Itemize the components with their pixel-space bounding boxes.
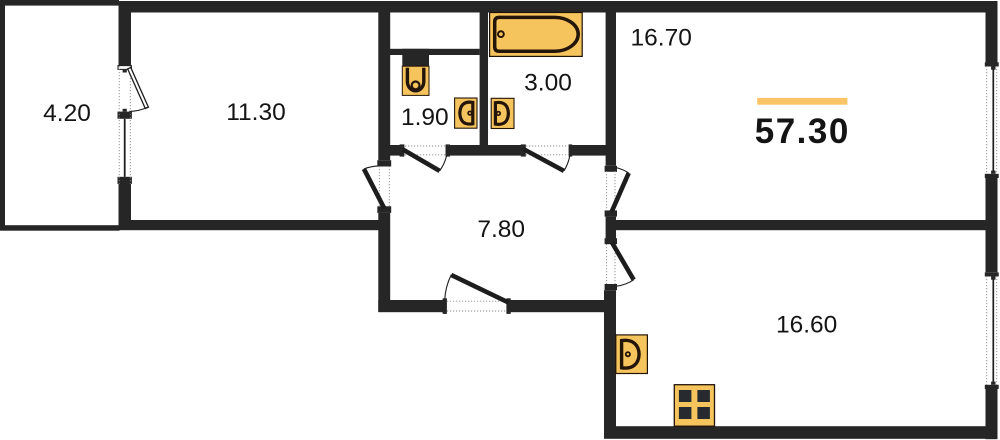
- svg-text:1.90: 1.90: [401, 104, 449, 131]
- svg-text:4.20: 4.20: [43, 100, 91, 127]
- svg-text:16.70: 16.70: [631, 24, 692, 51]
- svg-text:57.30: 57.30: [755, 112, 850, 151]
- svg-text:7.80: 7.80: [477, 216, 525, 243]
- svg-text:3.00: 3.00: [524, 70, 572, 97]
- svg-text:11.30: 11.30: [226, 99, 286, 126]
- svg-text:16.60: 16.60: [776, 312, 837, 339]
